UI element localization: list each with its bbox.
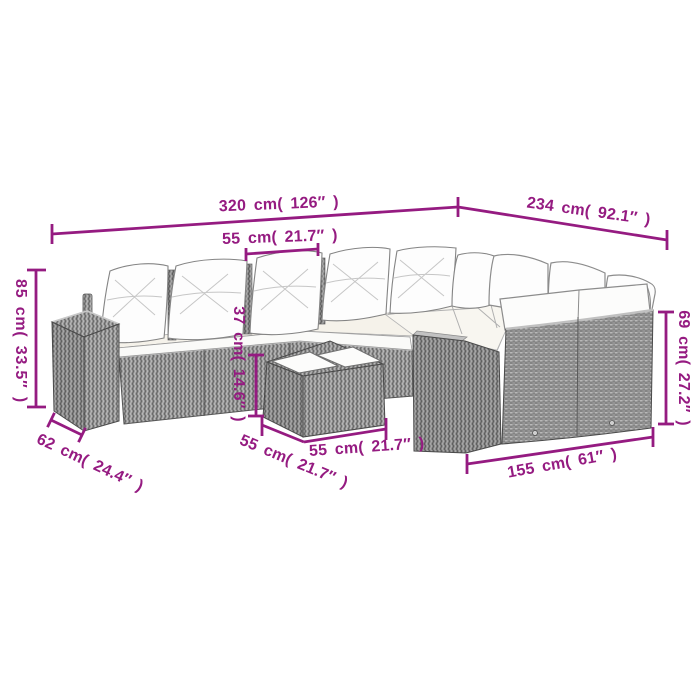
- svg-text:37 cm( 14.6″ ): 37 cm( 14.6″ ): [230, 306, 247, 422]
- svg-text:85 cm( 33.5″ ): 85 cm( 33.5″ ): [12, 279, 29, 403]
- svg-text:69 cm( 27.2″ ): 69 cm( 27.2″ ): [675, 310, 692, 426]
